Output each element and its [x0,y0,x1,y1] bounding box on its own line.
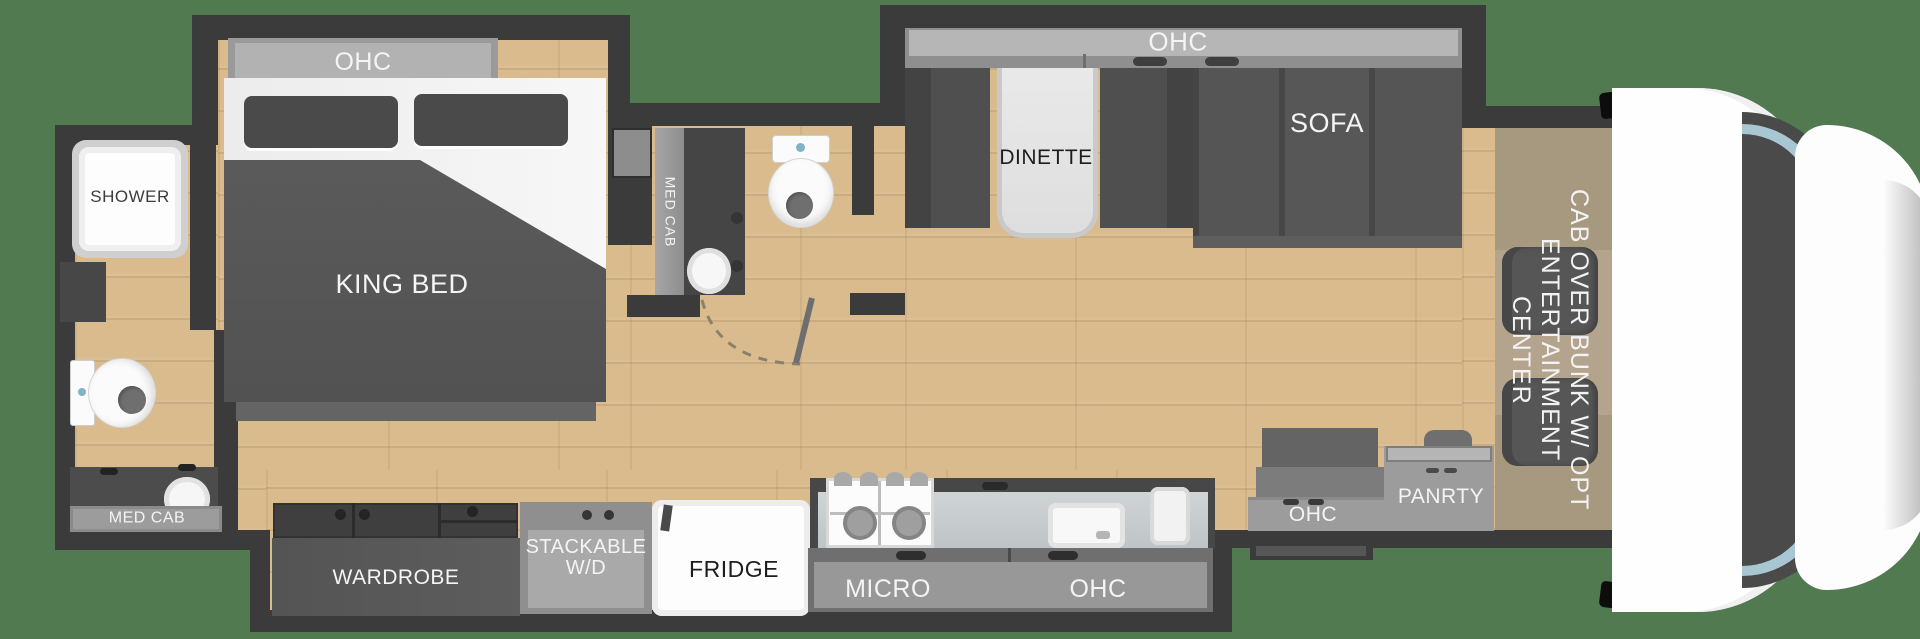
cab-bunk-label-line1: CAB OVER BUNK W/ OPT [1564,182,1593,518]
rv-floorplan: OHC KING BED SHOWER [0,0,1920,639]
entry-steps [1250,530,1373,560]
pantry-label: PANRTY [1398,486,1484,508]
micro-label: MICRO [845,576,931,602]
pantry-top [1386,446,1492,462]
cab-bunk-label: CAB OVER BUNK W/ OPT ENTERTAINMENT CENTE… [1506,182,1593,518]
stove-burner-cap [886,472,904,486]
wall-rear-bottom [55,530,258,550]
bedroom-ohc-label: OHC [334,49,391,75]
stackable-wd-label: STACKABLE W/D [526,537,647,579]
wall-bath-right [852,126,874,215]
stove-burner-cap [860,472,878,486]
cabinet-divider [1083,54,1086,68]
wd-label-line2: W/D [566,557,606,579]
prep-sink-cover [1150,487,1190,545]
sink-faucet [1096,531,1110,539]
entry-step [1256,546,1366,556]
stove-burner [892,506,926,540]
cab-bunk-label-line2: ENTERTAINMENT CENTER [1506,182,1564,518]
mid-med-cab-label: MED CAB [663,177,678,248]
stove-burner [843,506,877,540]
kitchen-sink [1048,503,1125,548]
wall-bedroom-top [192,15,630,40]
bed-pillow [244,96,398,148]
fridge-label: FRIDGE [689,557,779,581]
toilet-bowl-hole [118,386,146,414]
rear-vanity-counter [70,467,218,506]
vanity-knob [100,468,118,475]
cabinet-divider [1008,548,1011,562]
rear-med-cab-label: MED CAB [109,511,185,528]
toilet-flush-button [78,388,86,396]
sofa-label: SOFA [1290,109,1364,137]
entry-ohc-top [1262,428,1378,470]
dinette-label: DINETTE [999,147,1092,169]
dresser-divider [352,503,355,538]
wardrobe-label: WARDROBE [333,567,460,589]
entry-ohc-label: OHC [1289,504,1337,526]
cabinet-handle [896,551,926,560]
cabinet-handle [1444,468,1457,473]
rear-bath-cabinet [60,262,106,322]
stove [826,478,934,548]
cabinet-handle [1048,551,1078,560]
cabinet-handle [1205,57,1239,66]
king-bed-label: KING BED [335,270,468,298]
cab-hood [1795,125,1920,590]
toilet-flush-button [796,143,805,152]
dresser-knob [335,509,346,520]
dresser-divider [441,520,518,523]
living-ohc-label: OHC [1148,28,1207,55]
bed-foot-bench [236,402,596,421]
dinette-bench-right [1100,68,1193,228]
wall-bath-bottom-right [850,293,905,315]
fridge-handle [660,505,673,532]
wall-living-top [880,5,1486,28]
dresser-knob [467,506,478,517]
sofa [1193,68,1462,248]
entry-ohc-mid [1256,467,1384,498]
bedroom-tv-cabinet [612,128,652,178]
king-bed [224,78,606,402]
dresser-knob [359,509,370,520]
cabinet-handle [1133,57,1167,66]
stove-burner-cap [834,472,852,486]
kitchen-ohc-label: OHC [1069,576,1126,602]
wall-bath-divider-upper [190,125,216,330]
dinette-bench-left [905,68,990,228]
counter-handle [982,482,1008,490]
vanity-knob [178,464,196,471]
cabinet-handle [1426,468,1439,473]
shower-label: SHOWER [90,188,170,206]
bed-pillow [414,94,568,146]
wall-bath-top [608,103,905,126]
bath-door-swing [660,280,840,390]
bedroom-dresser [273,503,518,538]
med-cab-knob [731,212,743,224]
wd-label-line1: STACKABLE [526,536,647,558]
wd-knob [604,510,614,520]
med-cab-knob [731,260,743,272]
toilet-bowl-hole [786,192,813,219]
wd-knob [582,510,592,520]
cab-bumper-shade [1883,180,1920,530]
stove-burner-cap [910,472,928,486]
